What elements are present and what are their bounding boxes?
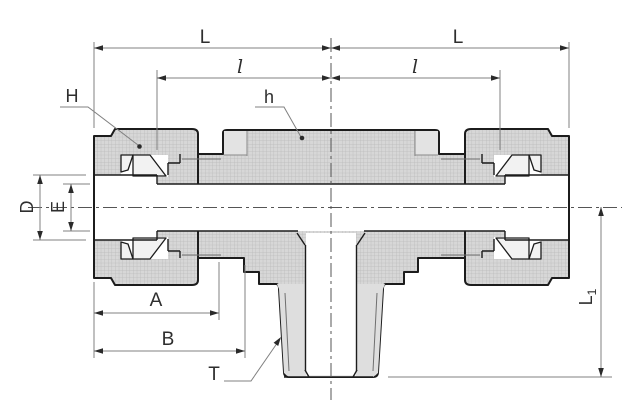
dim-label-l-left: l <box>237 56 243 78</box>
dim-label-A: A <box>150 290 163 311</box>
dim-label-D: D <box>17 201 37 214</box>
dim-label-T: T <box>208 364 220 385</box>
dim-label-B: B <box>162 329 175 350</box>
dim-label-L1: L1 <box>576 288 599 305</box>
body-hex-chamfer-right <box>415 131 438 155</box>
dim-label-E: E <box>48 201 68 213</box>
fitting-technical-drawing: L L l l H h D E A B T L1 <box>0 0 629 412</box>
drawing-canvas: L L l l H h D E A B T L1 <box>0 0 629 412</box>
dim-label-h: h <box>264 87 274 107</box>
dim-label-L-left: L <box>200 27 211 48</box>
dim-label-l-right: l <box>412 56 418 78</box>
dim-label-H: H <box>66 86 79 106</box>
dim-label-L-right: L <box>453 27 464 48</box>
body-hex-chamfer-left <box>224 131 247 155</box>
leader-T <box>224 339 280 381</box>
branch-bore <box>306 233 356 376</box>
